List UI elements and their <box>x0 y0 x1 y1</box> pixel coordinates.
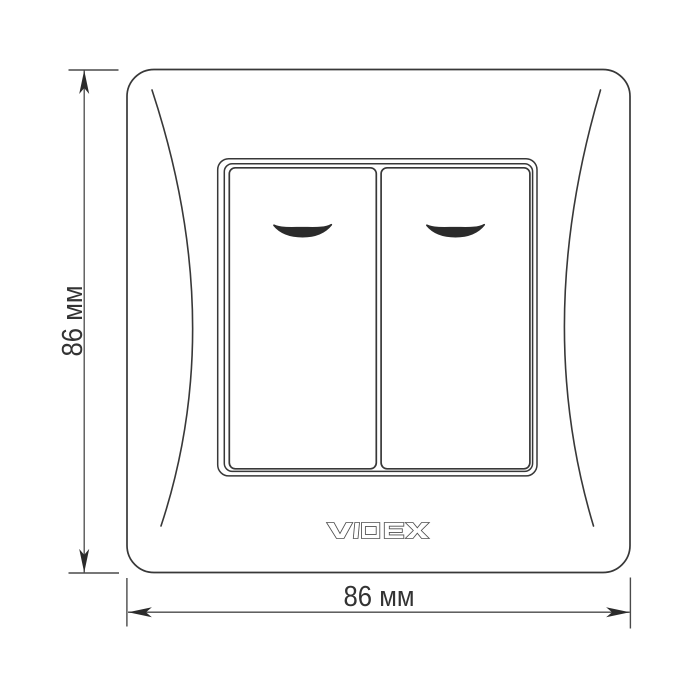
svg-text:86 мм: 86 мм <box>344 581 415 613</box>
svg-text:86 мм: 86 мм <box>57 286 89 357</box>
